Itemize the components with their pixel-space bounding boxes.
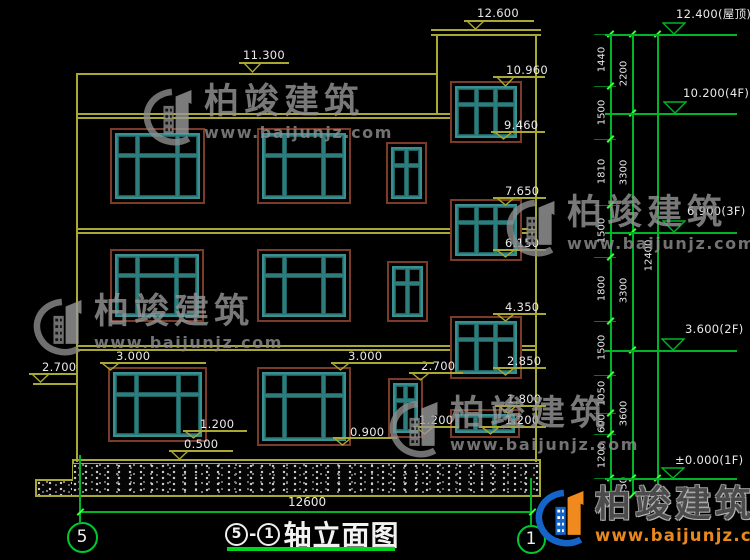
dimension-text-rotated: 3300 bbox=[619, 269, 630, 313]
dimension-text-rotated: 3300 bbox=[619, 150, 630, 194]
facade-line bbox=[436, 35, 438, 115]
level-triangle-icon bbox=[466, 20, 485, 31]
window-pane bbox=[458, 324, 475, 338]
level-triangle-icon bbox=[663, 101, 687, 115]
window-pane bbox=[458, 89, 475, 103]
window-pane bbox=[478, 341, 494, 371]
window-pane bbox=[325, 257, 343, 274]
elevation-label: 4.350 bbox=[505, 300, 539, 314]
dim-chain-line bbox=[657, 34, 659, 495]
facade-line bbox=[35, 495, 541, 497]
window-frame bbox=[113, 372, 202, 437]
window-pane bbox=[265, 397, 283, 438]
axis-line-right bbox=[530, 478, 532, 525]
watermark: 柏竣建筑 www.baijunjz.com bbox=[388, 397, 639, 463]
facade-line bbox=[522, 345, 536, 347]
level-triangle-icon bbox=[170, 450, 189, 461]
window-pane bbox=[497, 324, 514, 338]
dim-extension-line bbox=[594, 139, 616, 140]
watermark-url-text: www.baijunjz.com bbox=[204, 123, 393, 142]
elevation-label: 12.600 bbox=[477, 6, 519, 20]
level-label: 3.600(2F) bbox=[685, 322, 744, 336]
dimension-text-rotated: 1810 bbox=[597, 150, 608, 194]
watermark: 柏竣建筑 www.baijunjz.com bbox=[32, 295, 283, 361]
window-pane bbox=[325, 397, 343, 438]
window-pane bbox=[478, 89, 494, 103]
window-pane bbox=[118, 257, 136, 274]
window-pane bbox=[118, 157, 136, 196]
window-pane bbox=[408, 150, 419, 164]
level-triangle-icon bbox=[101, 362, 120, 372]
dimension-text-rotated: 2200 bbox=[619, 51, 630, 95]
window-pane bbox=[409, 285, 420, 314]
watermark-url-text: www.baijunjz.com bbox=[567, 234, 750, 253]
level-triangle-icon bbox=[496, 76, 515, 88]
watermark-cn-text: 柏竣建筑 bbox=[567, 196, 750, 231]
brand-footer: 柏竣建筑 www.baijunjz.com bbox=[534, 486, 750, 552]
level-triangle-icon bbox=[496, 367, 515, 377]
watermark-url-text: www.baijunjz.com bbox=[450, 435, 639, 454]
title-axis-bubble-5: 5 bbox=[225, 523, 248, 546]
cad-elevation-drawing: 5 - 1 轴立面图 12600 12.600 11.300 10.960 9.… bbox=[0, 0, 750, 560]
brand-url-text: www.baijunjz.com bbox=[595, 526, 750, 545]
level-triangle-icon bbox=[31, 373, 50, 384]
window-pane bbox=[408, 167, 419, 196]
window-pane bbox=[180, 375, 199, 393]
dim-extension-line bbox=[594, 86, 616, 87]
window-pane bbox=[116, 396, 135, 434]
level-label: 12.400(屋顶) bbox=[676, 6, 750, 22]
window-pane bbox=[478, 324, 494, 338]
window-pane bbox=[138, 396, 177, 434]
window-pane bbox=[138, 375, 177, 393]
window-pane bbox=[458, 207, 475, 221]
window-pane bbox=[478, 207, 494, 221]
window-pane bbox=[395, 269, 406, 282]
window-pane bbox=[478, 224, 494, 253]
window bbox=[387, 261, 428, 322]
window-pane bbox=[118, 136, 136, 154]
window-pane bbox=[139, 257, 175, 274]
window-pane bbox=[409, 269, 420, 282]
elevation-label: 0.900 bbox=[350, 425, 384, 439]
dim-extension-line bbox=[594, 321, 616, 322]
window-pane bbox=[265, 257, 283, 274]
window bbox=[386, 142, 427, 204]
window-pane bbox=[395, 285, 406, 314]
watermark-logo-icon bbox=[505, 196, 561, 262]
window-pane bbox=[265, 157, 283, 196]
watermark-url-text: www.baijunjz.com bbox=[94, 333, 283, 352]
window-pane bbox=[286, 257, 322, 274]
elevation-label: 1.200 bbox=[200, 417, 234, 431]
window-pane bbox=[286, 157, 322, 196]
window-pane bbox=[139, 157, 176, 196]
level-label: ±0.000(1F) bbox=[675, 453, 743, 467]
level-triangle-icon bbox=[661, 338, 685, 352]
window-frame bbox=[391, 147, 422, 199]
bottom-dim-line bbox=[80, 511, 532, 513]
ground-hatch bbox=[73, 464, 539, 495]
window-frame bbox=[262, 372, 346, 441]
watermark-cn-text: 柏竣建筑 bbox=[94, 295, 283, 330]
facade-line bbox=[76, 228, 452, 230]
level-triangle-icon bbox=[496, 313, 515, 323]
overall-width-dimension: 12600 bbox=[288, 495, 326, 509]
facade-line bbox=[522, 349, 536, 351]
watermark-logo-icon bbox=[32, 295, 88, 361]
level-triangle-icon bbox=[411, 372, 430, 382]
level-triangle-icon bbox=[333, 437, 352, 447]
title-axis-bubble-1: 1 bbox=[257, 523, 280, 546]
elevation-label: 10.960 bbox=[506, 63, 548, 77]
window-pane bbox=[325, 277, 343, 314]
facade-line bbox=[431, 29, 541, 31]
dimension-text-rotated: 1440 bbox=[597, 38, 608, 82]
window-pane bbox=[286, 375, 322, 394]
facade-line bbox=[76, 232, 452, 234]
watermark-logo-icon bbox=[388, 397, 444, 463]
elevation-label: 2.700 bbox=[42, 360, 76, 374]
window-pane bbox=[325, 375, 343, 394]
dimension-text-rotated: 1500 bbox=[597, 90, 608, 134]
window-pane bbox=[286, 397, 322, 438]
window-pane bbox=[458, 224, 475, 253]
window-pane bbox=[394, 167, 405, 196]
level-triangle-icon bbox=[661, 467, 685, 480]
window-pane bbox=[180, 396, 199, 434]
window-pane bbox=[325, 157, 343, 196]
watermark-cn-text: 柏竣建筑 bbox=[450, 397, 639, 432]
level-triangle-icon bbox=[662, 22, 686, 36]
elevation-label: 3.000 bbox=[348, 349, 382, 363]
brand-cn-text: 柏竣建筑 bbox=[595, 486, 750, 524]
level-triangle-icon bbox=[494, 131, 513, 141]
level-triangle-icon bbox=[243, 62, 262, 74]
facade-line bbox=[431, 34, 541, 36]
level-label: 10.200(4F) bbox=[683, 86, 749, 100]
elevation-label: 2.850 bbox=[507, 354, 541, 368]
window-pane bbox=[458, 106, 475, 135]
dimension-text-rotated: 1500 bbox=[597, 326, 608, 370]
window bbox=[257, 367, 351, 446]
watermark-cn-text: 柏竣建筑 bbox=[204, 85, 393, 120]
level-triangle-icon bbox=[331, 362, 350, 372]
elevation-label: 9.460 bbox=[504, 118, 538, 132]
elevation-label: 0.500 bbox=[184, 437, 218, 451]
window-pane bbox=[458, 341, 475, 371]
title-underline bbox=[227, 547, 395, 551]
watermark: 柏竣建筑 www.baijunjz.com bbox=[142, 85, 393, 151]
window-pane bbox=[178, 257, 196, 274]
dimension-text-rotated: 1800 bbox=[597, 267, 608, 311]
watermark-logo-icon bbox=[142, 85, 198, 151]
brand-logo-icon bbox=[534, 486, 590, 552]
title-dash: - bbox=[249, 524, 256, 545]
elevation-label: 11.300 bbox=[243, 48, 285, 62]
watermark: 柏竣建筑 www.baijunjz.com bbox=[505, 196, 750, 262]
window-pane bbox=[116, 375, 135, 393]
ground-hatch bbox=[37, 481, 72, 495]
window-pane bbox=[497, 89, 514, 103]
grid-axis-bubble: 5 bbox=[67, 522, 98, 553]
window-pane bbox=[265, 375, 283, 394]
window-pane bbox=[394, 150, 405, 164]
window-frame bbox=[392, 266, 423, 317]
window-pane bbox=[179, 157, 197, 196]
window-pane bbox=[286, 277, 322, 314]
facade-line bbox=[76, 73, 78, 462]
